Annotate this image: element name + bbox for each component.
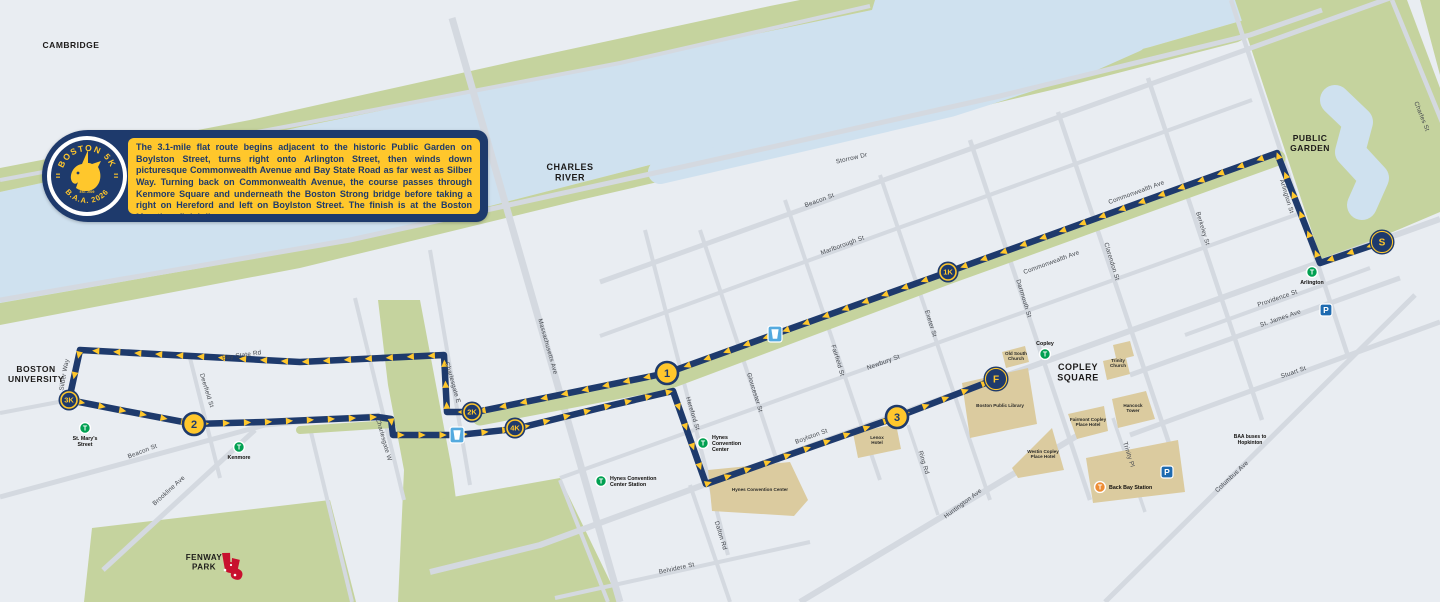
station-label: Center Station xyxy=(610,482,646,488)
building-label: Place Hotel xyxy=(1076,422,1101,427)
marker-1k: 1K xyxy=(938,262,959,283)
svg-text:S: S xyxy=(1379,238,1386,249)
marker-3: 3 xyxy=(886,406,908,428)
svg-text:T: T xyxy=(599,479,604,486)
area-label-public-garden: PUBLIC xyxy=(1293,133,1328,143)
svg-text:4K: 4K xyxy=(510,424,520,433)
building-label: Church xyxy=(1110,363,1126,368)
course-map: SF1K2K3K4K123TSt. Mary'sStreetTKenmoreTH… xyxy=(0,0,1440,602)
svg-text:3K: 3K xyxy=(64,396,74,405)
svg-text:T: T xyxy=(701,441,706,448)
parking-icon: P xyxy=(1161,466,1173,478)
race-badge: BOSTON 5K B.A.A. 2026 EST. 2009 The 3.1-… xyxy=(42,130,488,222)
marker-s: S xyxy=(1370,230,1394,254)
station-label: Kenmore xyxy=(228,455,251,461)
building-label: Boston Public Library xyxy=(976,403,1024,408)
water-station-icon xyxy=(768,326,782,342)
svg-text:2K: 2K xyxy=(467,408,477,417)
map-canvas: SF1K2K3K4K123TSt. Mary'sStreetTKenmoreTH… xyxy=(0,0,1440,602)
svg-text:F: F xyxy=(993,375,999,386)
station-label: Street xyxy=(77,442,92,448)
svg-text:3: 3 xyxy=(894,412,900,424)
baa-5k-logo-icon: BOSTON 5K B.A.A. 2026 EST. 2009 xyxy=(43,132,131,220)
station-label: Center xyxy=(712,447,729,453)
svg-text:T: T xyxy=(83,426,88,433)
marker-1: 1 xyxy=(656,362,678,384)
svg-text:2: 2 xyxy=(191,419,197,431)
svg-text:P: P xyxy=(1164,467,1170,477)
area-label-charles-river: CHARLES xyxy=(546,162,593,172)
svg-text:T: T xyxy=(1310,270,1315,277)
marker-3k: 3K xyxy=(59,390,80,411)
area-label-fenway-park: FENWAY xyxy=(186,553,223,562)
area-label-fenway-park: PARK xyxy=(192,563,216,572)
area-label-copley-square: SQUARE xyxy=(1057,373,1099,383)
marker-4k: 4K xyxy=(505,418,526,439)
station-label: Back Bay Station xyxy=(1109,485,1152,491)
svg-text:1K: 1K xyxy=(943,268,953,277)
marker-2k: 2K xyxy=(462,402,483,423)
station-label: Arlington xyxy=(1300,280,1324,286)
area-label-boston-university: BOSTON xyxy=(16,364,55,374)
area-label-charles-river: RIVER xyxy=(555,173,585,183)
area-label-public-garden: GARDEN xyxy=(1290,143,1330,153)
svg-text:1: 1 xyxy=(664,368,670,380)
water-station-icon xyxy=(450,427,464,443)
building-label: Place Hotel xyxy=(1031,454,1056,459)
area-label-boston-university: UNIVERSITY xyxy=(8,374,64,384)
marker-f: F xyxy=(984,367,1008,391)
station-label: Copley xyxy=(1036,341,1054,347)
area-label-copley-square: COPLEY xyxy=(1058,362,1098,372)
area-label-cambridge: CAMBRIDGE xyxy=(43,40,100,50)
svg-text:T: T xyxy=(1098,485,1103,492)
parking-icon: P xyxy=(1320,304,1332,316)
building-label: Hynes Convention Center xyxy=(732,487,788,492)
svg-text:T: T xyxy=(1043,352,1048,359)
building-label: Church xyxy=(1008,356,1024,361)
building-label: Hotel xyxy=(871,440,882,445)
route-description: The 3.1-mile flat route begins adjacent … xyxy=(128,138,480,214)
svg-text:T: T xyxy=(237,445,242,452)
building-label: Tower xyxy=(1126,408,1139,413)
baa-buses-note: Hopkinton xyxy=(1238,440,1263,446)
svg-text:P: P xyxy=(1323,305,1329,315)
marker-2: 2 xyxy=(183,413,205,435)
